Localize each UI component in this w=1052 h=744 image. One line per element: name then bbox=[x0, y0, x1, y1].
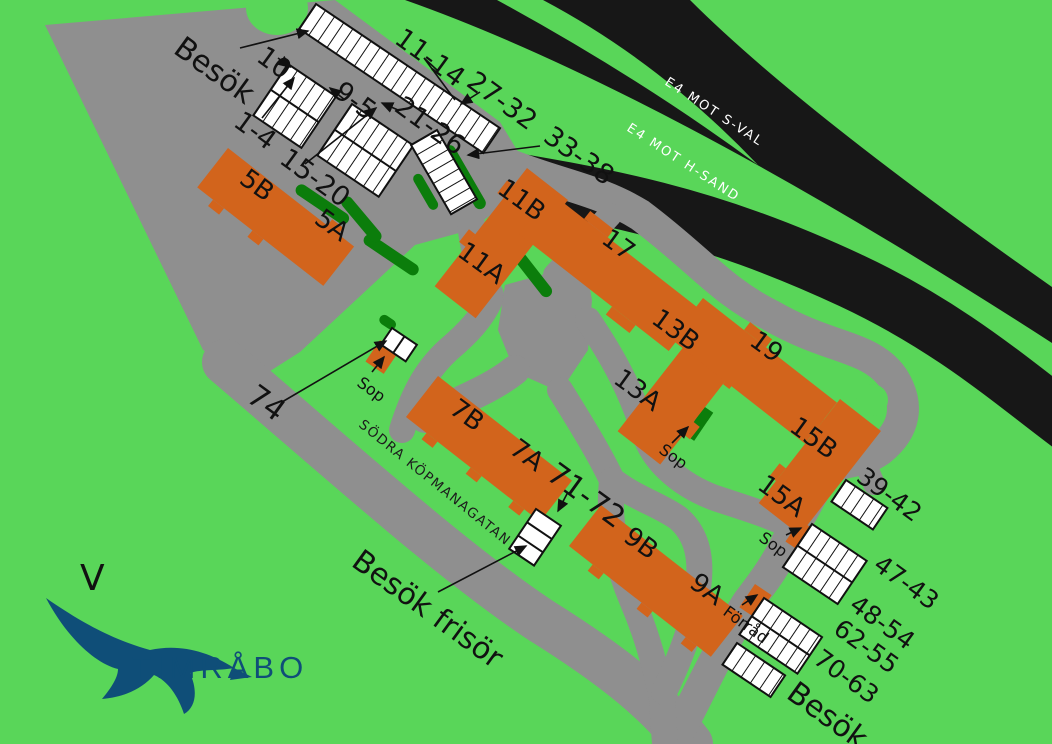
turnaround-island bbox=[856, 384, 888, 416]
compass-v-label: V bbox=[80, 558, 105, 599]
site-map: E4 MOT S-VAL E4 MOT H-SAND bbox=[0, 0, 1052, 744]
logo-wordmark: TIMRÅBO bbox=[132, 650, 308, 685]
map-canvas: E4 MOT S-VAL E4 MOT H-SAND bbox=[0, 0, 1052, 744]
